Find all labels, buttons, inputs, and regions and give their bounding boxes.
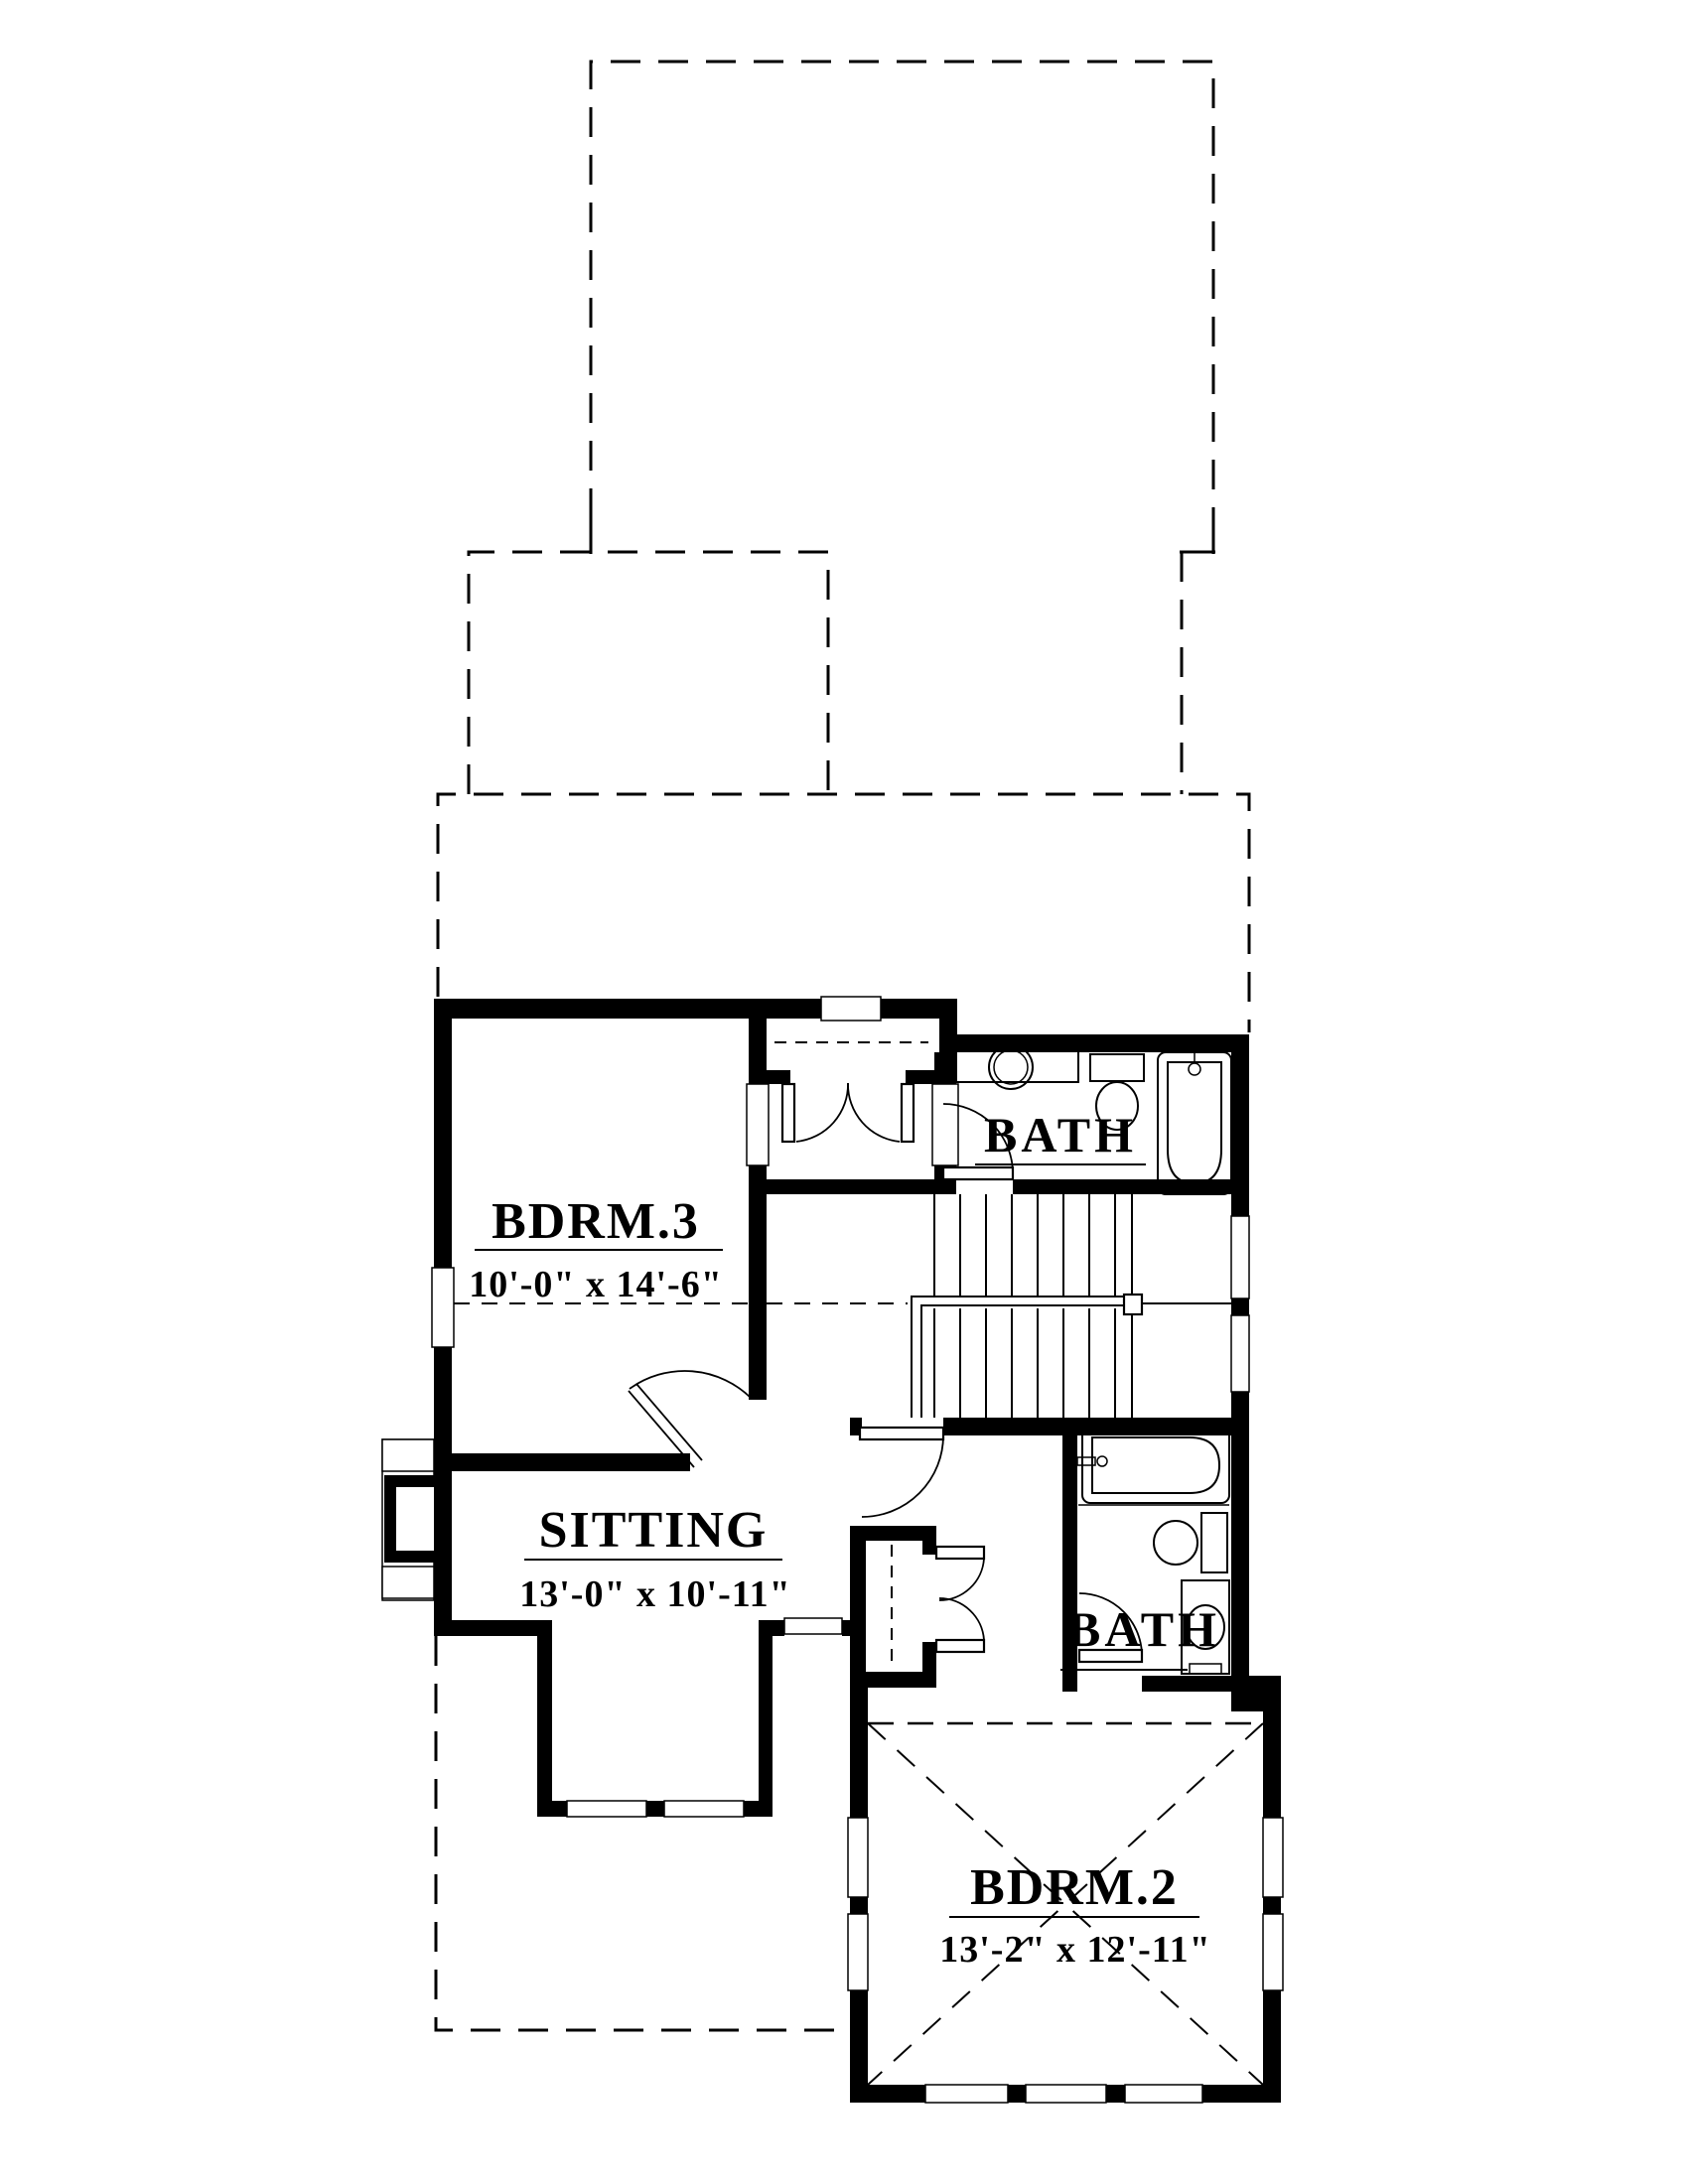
nook-south-wall [646, 1801, 664, 1817]
window [925, 2085, 1008, 2103]
sitting-southeast-wall [773, 1620, 784, 1636]
room-name: BATH [984, 1107, 1137, 1162]
bdrm3-south-wall [434, 1453, 690, 1471]
handrail-outer [912, 1297, 1124, 1418]
toilet-tank [1201, 1513, 1227, 1572]
bdrm2-west-wall [850, 1990, 868, 2085]
room-dimensions: 13'-2" x 12'-11" [939, 1929, 1211, 1971]
bdrm3-corner-door [629, 1371, 752, 1467]
floor-plan-sheet: BDRM.3 10'-0" x 14'-6" SITTING 13'-0" x … [0, 0, 1688, 2184]
window [1231, 1315, 1249, 1392]
window [848, 1914, 868, 1990]
window [567, 1801, 646, 1817]
room-label-bath-upper: BATH [975, 1107, 1146, 1164]
bdrm2-south-wall [1106, 2085, 1125, 2103]
door-swing [848, 1083, 900, 1142]
room-name: BDRM.3 [492, 1193, 700, 1250]
door-swing [630, 1371, 752, 1399]
closet2-double-doors [936, 1547, 984, 1652]
bath-west-wall [934, 1052, 956, 1084]
newel-post [1124, 1295, 1142, 1314]
bath2-south-wall [1142, 1676, 1252, 1692]
room-dimensions: 13'-0" x 10'-11" [519, 1573, 791, 1615]
window [432, 1268, 454, 1347]
window [1231, 1216, 1249, 1298]
window [1263, 1818, 1283, 1897]
bdrm2-west-wall [850, 1897, 868, 1914]
tub-faucet-icon [1097, 1456, 1107, 1466]
room-dimensions: 10'-0" x 14'-6" [469, 1264, 723, 1305]
bdrm2-east-wall [1263, 1711, 1281, 1818]
closet-door-leaf [782, 1084, 794, 1142]
room-label-bdrm3: BDRM.3 10'-0" x 14'-6" [469, 1193, 723, 1305]
roof-outline-lower-left [436, 1636, 849, 2030]
stairs [912, 1194, 1231, 1418]
window [1263, 1914, 1283, 1990]
door-swing [862, 1435, 943, 1517]
bathtub-symbol [1158, 1052, 1231, 1194]
toilet-bowl-symbol [1154, 1521, 1197, 1565]
room-label-sitting: SITTING 13'-0" x 10'-11" [519, 1502, 791, 1615]
window [664, 1801, 744, 1817]
closet-front-wall [749, 1070, 790, 1084]
room-labels: BDRM.3 10'-0" x 14'-6" SITTING 13'-0" x … [469, 1107, 1220, 1971]
window [848, 1818, 868, 1897]
floor-plan-drawing: BDRM.3 10'-0" x 14'-6" SITTING 13'-0" x … [0, 0, 1688, 2184]
cased-opening [932, 1084, 958, 1165]
exterior-wall-right [1231, 1298, 1249, 1315]
vanity-counter [956, 1050, 1078, 1082]
door-swing [939, 1598, 984, 1640]
tub-faucet-icon [1189, 1063, 1200, 1075]
closet2-jamb [922, 1642, 936, 1672]
window [1125, 2085, 1202, 2103]
toilet-tank [1090, 1054, 1144, 1081]
nook-west-wall [537, 1620, 552, 1817]
handrail-inner [921, 1305, 1124, 1418]
roof-outline-corner-right [1180, 516, 1215, 554]
closet-door-leaf [902, 1084, 914, 1142]
exterior-wall-left [434, 999, 452, 1268]
bdrm2-west-wall [850, 1688, 868, 1818]
nook-south-wall [537, 1801, 567, 1817]
bath-south-wall [1013, 1179, 1249, 1194]
window [1026, 2085, 1106, 2103]
window [784, 1618, 842, 1634]
bdrm2-south-wall [1202, 2085, 1281, 2103]
sitting-south-wall [434, 1620, 540, 1636]
cased-openings [747, 1084, 958, 1165]
east-wall-strip [850, 1526, 866, 1688]
room-name: BATH [1067, 1601, 1220, 1657]
roof-outline-middle-box [469, 552, 828, 794]
door-swing [939, 1559, 984, 1600]
closet-door-leaf [936, 1640, 984, 1652]
door-swing [796, 1083, 848, 1142]
stair-risers-lower-flight [934, 1308, 1115, 1418]
closet1-double-doors [782, 1083, 914, 1142]
chimney-window [382, 1439, 434, 1471]
bdrm2-east-wall [1263, 1990, 1281, 2085]
room-name: BDRM.2 [970, 1859, 1179, 1916]
bathtub-basin [1168, 1062, 1221, 1183]
bdrm2-south-wall [1008, 2085, 1026, 2103]
bdrm2-east-wall [1263, 1897, 1281, 1914]
vanity-sink-inner [994, 1050, 1028, 1084]
exterior-wall-bath-top [939, 1034, 1249, 1052]
bathtub-basin [1092, 1437, 1219, 1493]
closet-door-leaf [936, 1547, 984, 1559]
vanity-detail [1190, 1664, 1221, 1674]
room-label-bdrm2: BDRM.2 13'-2" x 12'-11" [939, 1859, 1211, 1971]
room-name: SITTING [539, 1502, 769, 1559]
cased-opening [747, 1084, 769, 1165]
sitting-southeast-wall [842, 1620, 866, 1636]
nook-east-wall [759, 1620, 773, 1817]
sitting-hall-door [860, 1428, 943, 1517]
stair-risers-upper-flight [934, 1194, 1115, 1297]
hall-south-wall [943, 1418, 1231, 1435]
chimney-window [382, 1567, 434, 1598]
window [821, 997, 881, 1021]
door-leaf [860, 1428, 943, 1439]
closet2-jamb [922, 1541, 936, 1555]
roof-outline-upper-box [591, 62, 1213, 518]
vestibule-south-wall [749, 1179, 943, 1194]
bdrm3-east-wall [749, 1165, 767, 1400]
exterior-wall-right [1231, 1392, 1249, 1688]
door-leaf [943, 1167, 1013, 1179]
bdrm2-south-wall [850, 2085, 925, 2103]
chimney-flue [396, 1487, 434, 1551]
